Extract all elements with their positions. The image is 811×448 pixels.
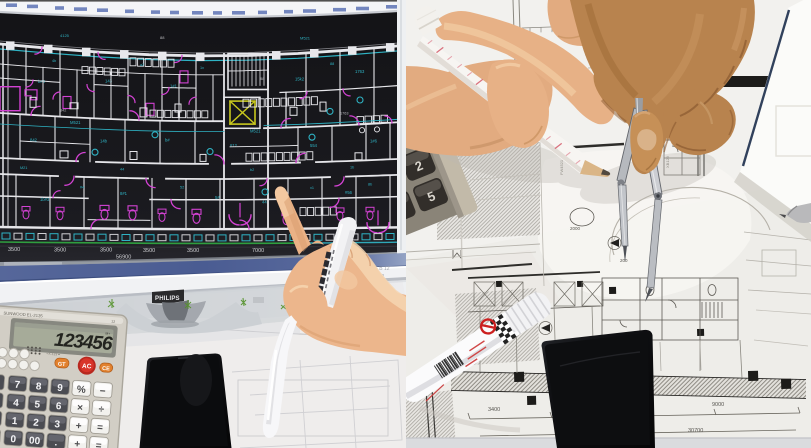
svg-text:554: 554 — [310, 143, 318, 148]
svg-text:=: = — [97, 422, 104, 433]
svg-text:8b: 8b — [368, 183, 372, 187]
svg-text:=: = — [95, 440, 102, 448]
svg-text:a2: a2 — [140, 63, 144, 67]
svg-text:3500: 3500 — [8, 247, 20, 253]
svg-text:12: 12 — [111, 320, 115, 324]
svg-text:7000: 7000 — [252, 248, 264, 254]
svg-text:M521: M521 — [70, 120, 81, 125]
svg-text:M521: M521 — [250, 128, 261, 133]
svg-text:1#6: 1#6 — [370, 139, 378, 144]
svg-text:M21: M21 — [20, 166, 27, 170]
svg-text:5#: 5# — [215, 195, 220, 200]
svg-text:M+: M+ — [105, 331, 110, 335]
svg-text:52: 52 — [180, 185, 184, 189]
svg-text:9000: 9000 — [712, 402, 724, 408]
svg-text:2000: 2000 — [570, 226, 581, 231]
svg-text:44: 44 — [262, 199, 267, 204]
svg-text:3400: 3400 — [488, 407, 500, 413]
svg-text:88: 88 — [260, 77, 264, 81]
svg-text:1x: 1x — [200, 66, 204, 70]
svg-text:×: × — [77, 403, 84, 414]
svg-text:1b#3: 1b#3 — [40, 197, 50, 202]
svg-text:88: 88 — [160, 35, 165, 40]
svg-text:8#1: 8#1 — [120, 191, 128, 196]
svg-text:#56: #56 — [345, 190, 353, 195]
svg-text:AC: AC — [82, 363, 92, 371]
svg-text:143: 143 — [150, 115, 156, 119]
svg-text:+: + — [75, 421, 82, 432]
svg-text:−: − — [99, 386, 106, 397]
svg-text:b#: b# — [165, 138, 170, 143]
svg-text:3500: 3500 — [100, 248, 112, 254]
svg-text:3500: 3500 — [143, 248, 155, 254]
svg-text:x1: x1 — [310, 186, 314, 190]
svg-text:00: 00 — [29, 435, 41, 447]
svg-text:4b: 4b — [52, 59, 56, 63]
svg-text:#4: #4 — [80, 186, 84, 190]
svg-text:3500: 3500 — [54, 247, 66, 253]
svg-text:4125: 4125 — [60, 33, 70, 38]
svg-text:M521: M521 — [300, 35, 311, 40]
svg-text:88: 88 — [330, 62, 334, 66]
svg-text:1763: 1763 — [355, 69, 365, 74]
svg-text:%: % — [76, 384, 86, 396]
svg-text:3500: 3500 — [187, 248, 199, 254]
svg-text:15k2: 15k2 — [295, 76, 305, 81]
svg-text:842: 842 — [60, 109, 66, 113]
svg-text:1b: 1b — [350, 166, 354, 170]
svg-text:200: 200 — [620, 258, 628, 263]
svg-text:44: 44 — [120, 167, 124, 171]
svg-text:b2: b2 — [250, 168, 254, 172]
svg-text:PHILIPS: PHILIPS — [155, 296, 180, 302]
svg-text:30700: 30700 — [688, 428, 703, 434]
svg-text:GT: GT — [58, 362, 67, 369]
svg-text:CE: CE — [102, 366, 110, 373]
svg-text:143: 143 — [105, 78, 113, 83]
svg-text:1763: 1763 — [340, 112, 348, 116]
svg-text:+: + — [74, 439, 81, 448]
svg-text:14b: 14b — [100, 139, 108, 144]
